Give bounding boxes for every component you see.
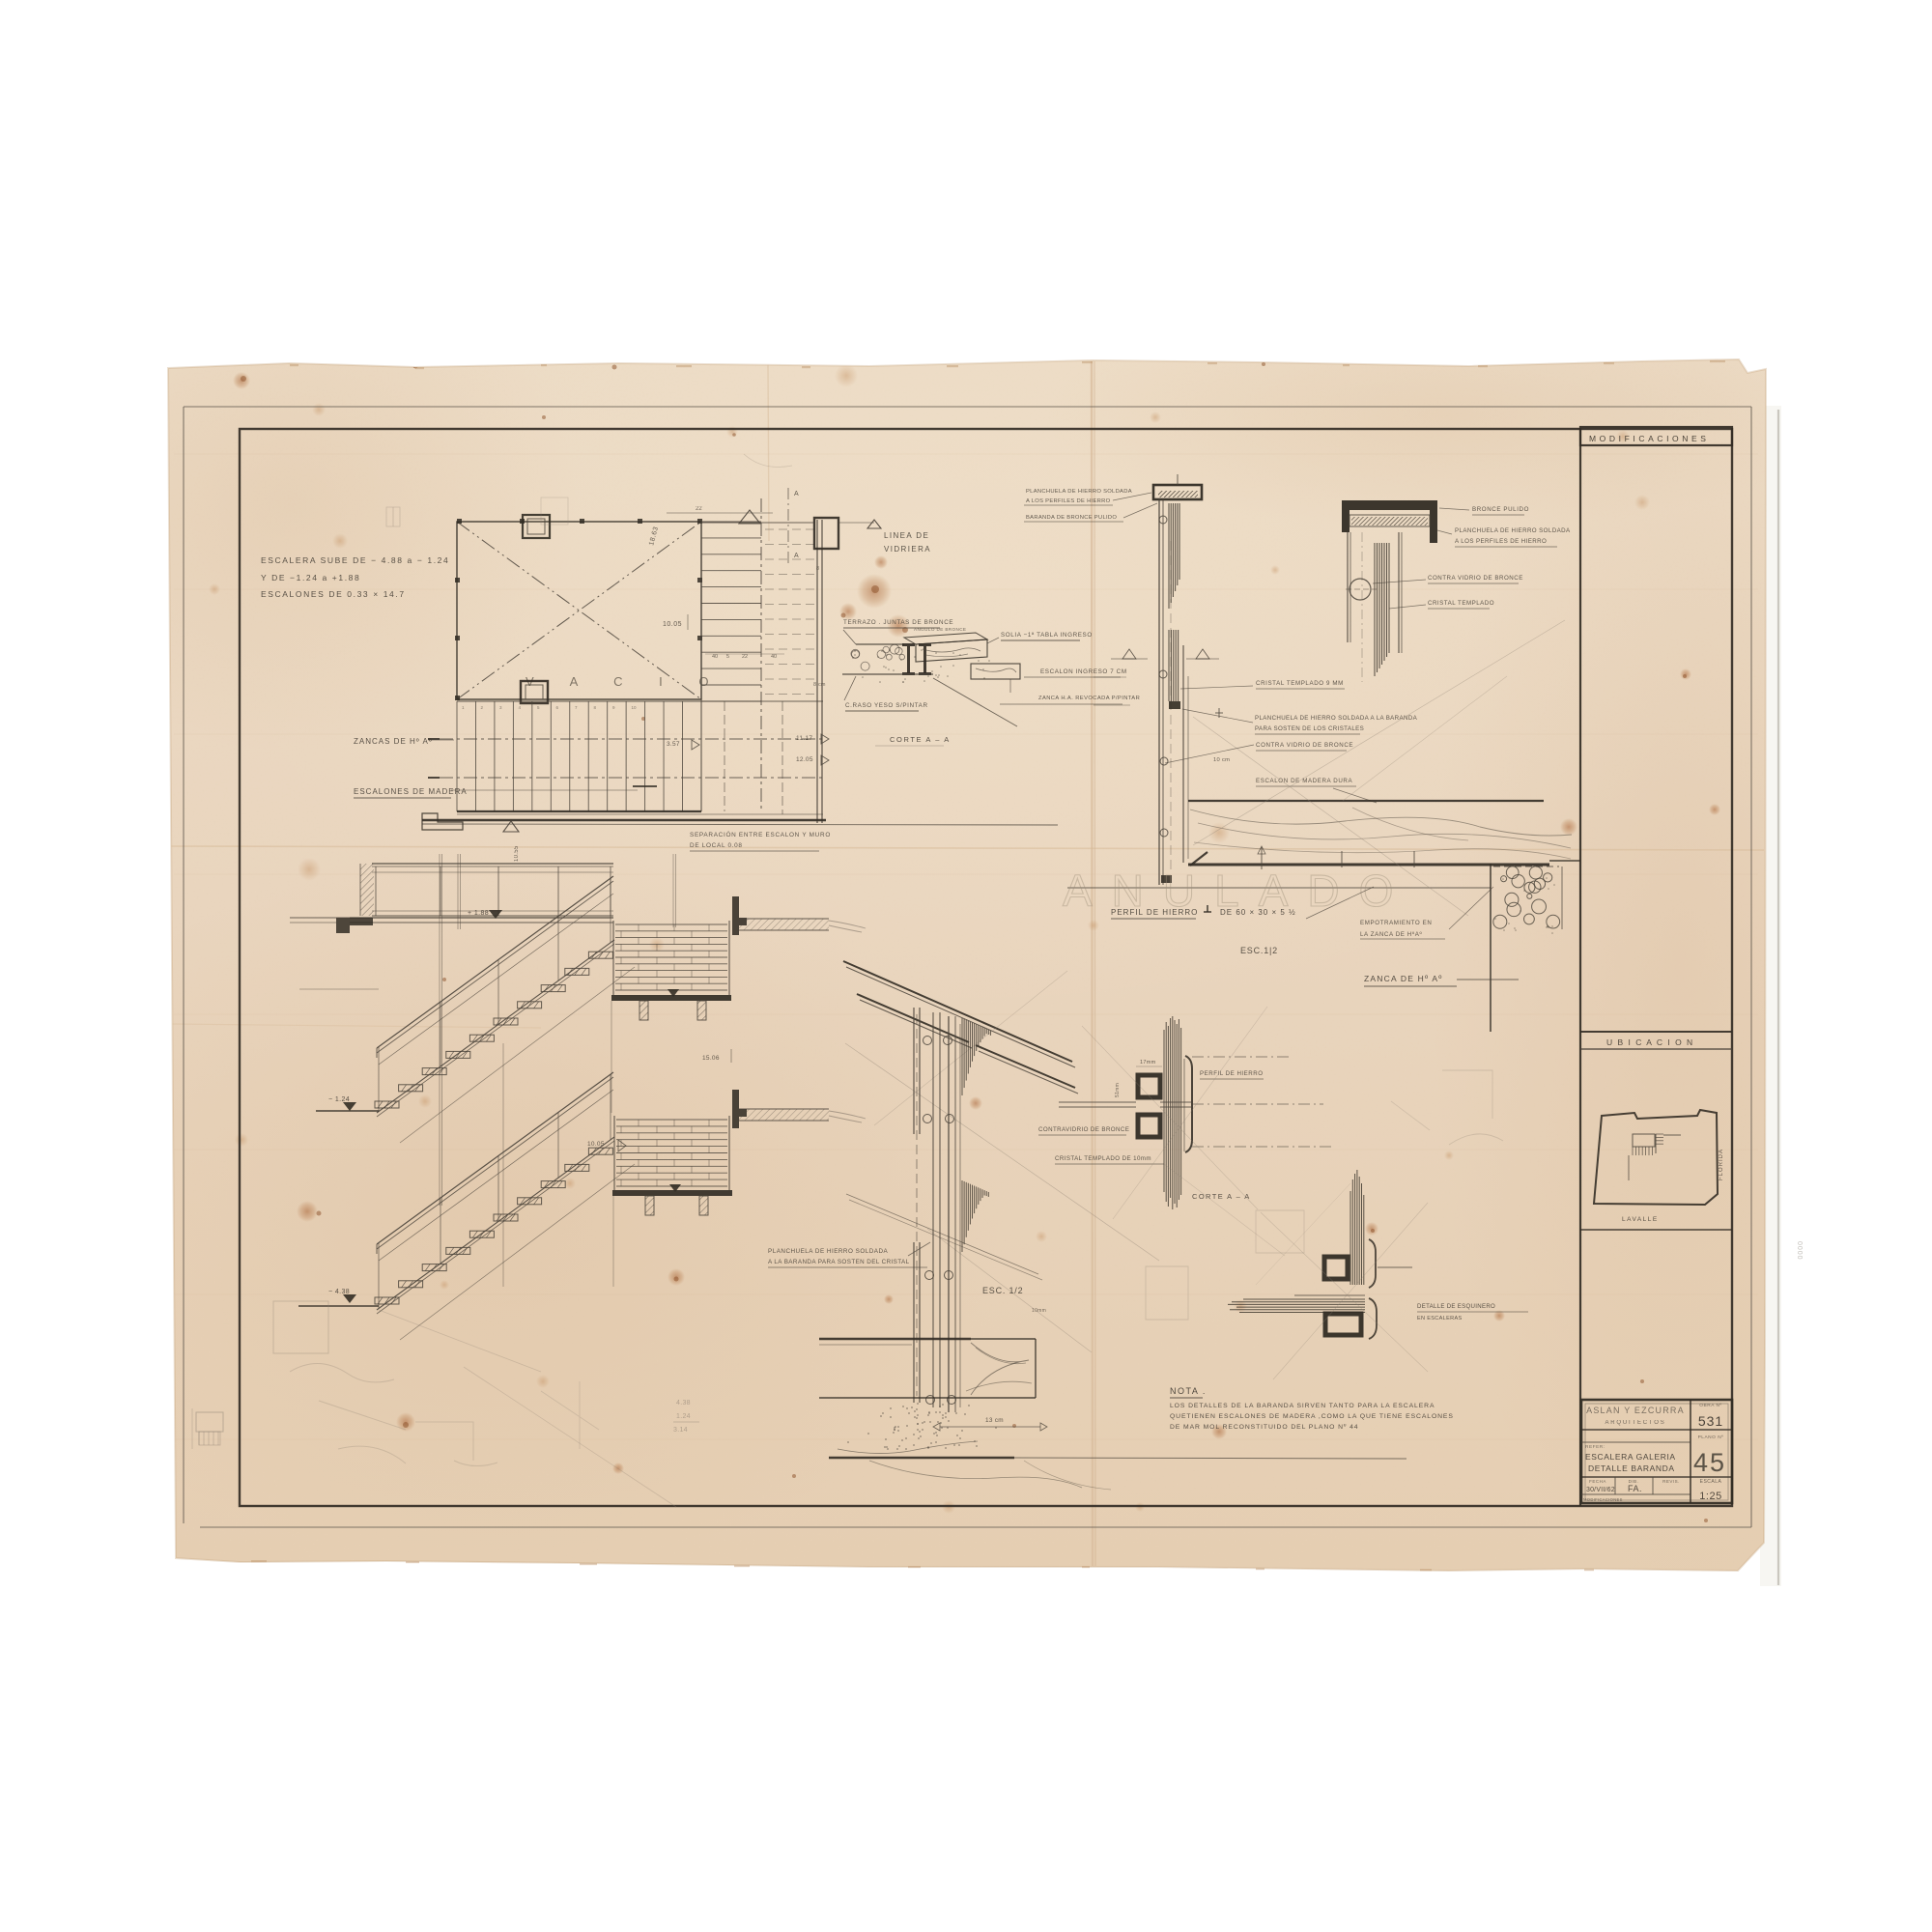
svg-text:DETALLE DE ESQUINERO: DETALLE DE ESQUINERO (1417, 1303, 1495, 1310)
svg-text:PLANCHUELA DE HIERRO SOLDAD: PLANCHUELA DE HIERRO SOLDADA (1455, 527, 1571, 534)
svg-text:LINEA DE: LINEA DE (884, 531, 929, 540)
svg-text:ESC.1|2: ESC.1|2 (1240, 946, 1278, 955)
svg-text:1.24: 1.24 (676, 1413, 691, 1420)
svg-text:51mm: 51mm (1115, 1083, 1121, 1097)
svg-text:PLANCHUELA DE HIERRO SOLDAD: PLANCHUELA DE HIERRO SOLDADA (768, 1248, 889, 1255)
svg-text:40: 40 (771, 654, 777, 660)
svg-text:DE 60 × 30 × 5 ½: DE 60 × 30 × 5 ½ (1220, 908, 1296, 917)
svg-text:A: A (794, 491, 799, 497)
svg-text:PLANCHUELA DE HIERRO SOLDAD: PLANCHUELA DE HIERRO SOLDADA A LA BARAND… (1255, 715, 1418, 722)
svg-text:30/VII/62: 30/VII/62 (1586, 1487, 1615, 1493)
svg-text:LA ZANCA DE HºAº: LA ZANCA DE HºAº (1360, 931, 1422, 938)
svg-text:3.14: 3.14 (673, 1427, 688, 1434)
svg-text:10.05: 10.05 (587, 1141, 605, 1148)
svg-text:ZANCA H.A. REVOCADA P/PINTAR: ZANCA H.A. REVOCADA P/PINTAR (1038, 696, 1140, 701)
svg-text:ESCALERA GALERIA: ESCALERA GALERIA (1585, 1452, 1676, 1462)
svg-text:ESCALERA SUBE DE − 4.88 a: ESCALERA SUBE DE − 4.88 a − 1.24 (261, 555, 449, 565)
svg-text:ESCALONES DE 0.33 × 14.7: ESCALONES DE 0.33 × 14.7 (261, 589, 406, 599)
svg-text:8: 8 (816, 566, 819, 572)
svg-text:DE MAR MOL RECONSTITUIDO DEL: DE MAR MOL RECONSTITUIDO DEL PLANO Nº 44 (1170, 1424, 1358, 1431)
svg-text:A LOS PERFILES DE HIERRO: A LOS PERFILES DE HIERRO (1026, 498, 1111, 504)
svg-text:10.05: 10.05 (663, 621, 682, 628)
svg-text:CONTRAVIDRIO DE BRONCE: CONTRAVIDRIO DE BRONCE (1038, 1126, 1129, 1133)
svg-text:531: 531 (1698, 1413, 1723, 1429)
svg-text:CORTE A – A: CORTE A – A (1192, 1192, 1251, 1201)
svg-text:10.55: 10.55 (514, 845, 520, 862)
svg-text:− 4.38: − 4.38 (328, 1289, 350, 1295)
svg-text:REFER:: REFER: (1585, 1444, 1605, 1450)
svg-text:LOS DETALLES DE LA BARANDA S: LOS DETALLES DE LA BARANDA SIRVEN TANTO … (1170, 1403, 1435, 1409)
svg-text:A LOS PERFILES DE HIERRO: A LOS PERFILES DE HIERRO (1455, 538, 1547, 545)
svg-text:PLANCHUELA DE HIERRO SOLDADA: PLANCHUELA DE HIERRO SOLDADA (1026, 489, 1132, 495)
svg-text:22: 22 (742, 654, 748, 660)
svg-text:22: 22 (696, 506, 702, 512)
svg-text:ESC. 1/2: ESC. 1/2 (982, 1286, 1023, 1295)
svg-text:PLANO Nº: PLANO Nº (1698, 1435, 1724, 1440)
svg-text:13 cm: 13 cm (985, 1417, 1004, 1424)
svg-text:EMPOTRAMIENTO EN: EMPOTRAMIENTO EN (1360, 920, 1432, 926)
svg-text:ESCALON DE MADERA DURA: ESCALON DE MADERA DURA (1256, 778, 1352, 784)
svg-text:10 cm: 10 cm (1213, 757, 1230, 763)
svg-text:DETALLE BARANDA: DETALLE BARANDA (1588, 1463, 1675, 1473)
svg-text:MODIFICACIONES: MODIFICACIONES (1583, 1497, 1623, 1502)
svg-text:LAVALLE: LAVALLE (1622, 1216, 1659, 1223)
svg-text:BRONCE PULIDO: BRONCE PULIDO (1472, 506, 1529, 513)
svg-text:15.06: 15.06 (702, 1055, 720, 1062)
svg-text:MODIFICACIONES: MODIFICACIONES (1589, 434, 1710, 443)
svg-text:5: 5 (726, 654, 729, 660)
svg-text:A LA BARANDA PARA SOSTEN: A LA BARANDA PARA SOSTEN DEL CRISTAL (768, 1259, 910, 1265)
svg-text:ARQUITECTOS: ARQUITECTOS (1605, 1420, 1665, 1426)
svg-text:12.05: 12.05 (796, 756, 813, 763)
svg-text:10: 10 (632, 705, 638, 710)
svg-text:45: 45 (1693, 1448, 1726, 1477)
svg-text:DE LOCAL 0.08: DE LOCAL 0.08 (690, 842, 743, 849)
svg-text:17mm: 17mm (1140, 1060, 1156, 1065)
svg-text:CRISTAL TEMPLADO 9 MM: CRISTAL TEMPLADO 9 MM (1256, 680, 1344, 687)
svg-text:CONTRA VIDRIO DE BRONCE: CONTRA VIDRIO DE BRONCE (1428, 575, 1523, 582)
svg-text:BARANDA DE BRONCE PULIDO: BARANDA DE BRONCE PULIDO (1026, 515, 1117, 521)
svg-text:QUETIENEN ESCALONES DE MADERA: QUETIENEN ESCALONES DE MADERA ,COMO LA Q… (1170, 1413, 1454, 1420)
svg-text:3.57: 3.57 (667, 741, 680, 748)
svg-text:PARA SOSTEN DE LOS CRISTALE: PARA SOSTEN DE LOS CRISTALES (1255, 725, 1364, 732)
svg-text:SOLIA −1ª TABLA INGRESO: SOLIA −1ª TABLA INGRESO (1001, 632, 1093, 639)
svg-text:40: 40 (712, 654, 718, 660)
svg-text:VIDRIERA: VIDRIERA (884, 545, 931, 554)
svg-text:− 1.24: − 1.24 (328, 1096, 350, 1103)
svg-text:U B I C A C I O N: U B I C A C I O N (1606, 1037, 1694, 1047)
svg-text:FECHA: FECHA (1589, 1479, 1606, 1484)
svg-text:CORTE A – A: CORTE A – A (890, 735, 951, 744)
svg-text:V A C I O: V A C I O (526, 674, 724, 689)
svg-text:11.17: 11.17 (796, 735, 812, 742)
svg-text:PERFIL DE HIERRO: PERFIL DE HIERRO (1111, 908, 1198, 917)
svg-text:CRISTAL TEMPLADO DE 10mm: CRISTAL TEMPLADO DE 10mm (1055, 1155, 1151, 1162)
svg-text:EN ESCALERAS: EN ESCALERAS (1417, 1316, 1463, 1321)
svg-text:Y DE −1.24 a +1.88: Y DE −1.24 a +1.88 (261, 573, 360, 582)
svg-text:ZANCA DE Hº Aº: ZANCA DE Hº Aº (1364, 974, 1443, 983)
svg-text:PERFIL DE HIERRO: PERFIL DE HIERRO (1200, 1070, 1264, 1077)
svg-text:C.RASO YESO S/PINTAR: C.RASO YESO S/PINTAR (845, 702, 928, 709)
svg-text:1:25: 1:25 (1699, 1491, 1721, 1502)
svg-text:A: A (794, 553, 799, 559)
svg-text:ASLAN Y EZCURRA: ASLAN Y EZCURRA (1586, 1406, 1685, 1415)
svg-text:CONTRA VIDRIO DE BRONCE: CONTRA VIDRIO DE BRONCE (1256, 742, 1353, 749)
svg-text:REVIS.: REVIS. (1662, 1479, 1680, 1484)
svg-text:4.38: 4.38 (676, 1400, 691, 1406)
svg-text:ESCALONES DE MADERA: ESCALONES DE MADERA (354, 787, 468, 796)
svg-text:ESCALON INGRESO 7 CM: ESCALON INGRESO 7 CM (1040, 668, 1127, 675)
svg-text:FA.: FA. (1628, 1484, 1642, 1493)
svg-text:0000: 0000 (1796, 1241, 1803, 1261)
svg-text:8 cm: 8 cm (813, 682, 826, 688)
svg-text:FLORIDA: FLORIDA (1719, 1149, 1724, 1180)
svg-text:ANGULO DE BRONCE: ANGULO DE BRONCE (914, 627, 966, 632)
svg-text:TERRAZO . JUNTAS DE BRONCE: TERRAZO . JUNTAS DE BRONCE (843, 619, 953, 626)
svg-text:+ 1.88: + 1.88 (468, 910, 489, 917)
svg-text:SEPARACIÓN ENTRE ESCALON Y: SEPARACIÓN ENTRE ESCALON Y MURO (690, 830, 831, 838)
svg-text:ZANCAS DE Hº Aº: ZANCAS DE Hº Aº (354, 737, 433, 746)
svg-text:NOTA .: NOTA . (1170, 1386, 1207, 1396)
svg-text:ESCALA: ESCALA (1700, 1479, 1722, 1485)
svg-text:OBRA Nº: OBRA Nº (1699, 1403, 1721, 1408)
svg-text:10mm: 10mm (1032, 1308, 1046, 1314)
svg-text:CRISTAL TEMPLADO: CRISTAL TEMPLADO (1428, 600, 1494, 607)
